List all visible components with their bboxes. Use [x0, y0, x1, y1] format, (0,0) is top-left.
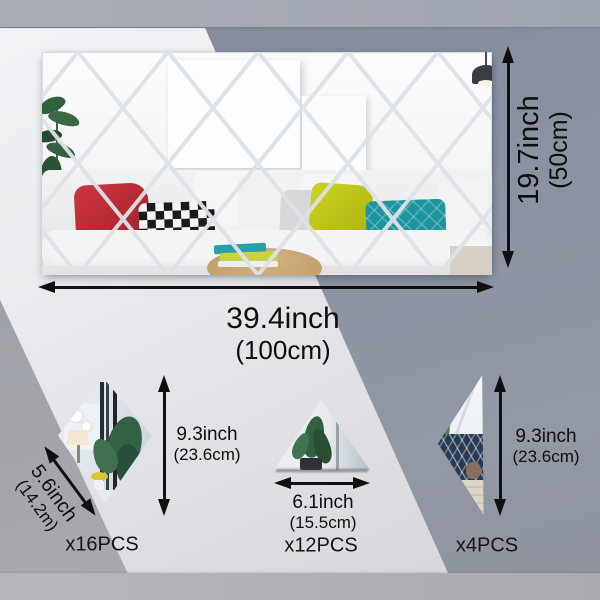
flower-dot [82, 422, 91, 431]
half-diamond-height-arrow [493, 375, 507, 516]
triangle-base-cm: (15.5cm) [289, 513, 356, 532]
half-diamond-piece-photo [438, 374, 486, 516]
diamond-height-label: 9.3inch (23.6cm) [173, 424, 240, 464]
top-band [0, 0, 600, 27]
half-diamond-height-cm: (23.6cm) [512, 447, 579, 466]
diamond-lattice-seams [42, 52, 492, 275]
main-height-cm: (50cm) [545, 95, 573, 205]
main-height-label: 19.7inch (50cm) [513, 95, 573, 205]
diamond-height-arrow [157, 375, 171, 516]
diamond-height-cm: (23.6cm) [173, 445, 240, 464]
table-lamp-shade [66, 430, 90, 445]
beige-blanket [446, 480, 484, 516]
triangle-base-label: 6.1inch (15.5cm) [289, 492, 356, 532]
triangle-base-inches: 6.1inch [289, 492, 356, 513]
product-dimension-diagram: 39.4inch (100cm) 19.7inch (50cm) [0, 0, 600, 600]
triangle-shadow [276, 469, 368, 472]
diamond-height-inches: 9.3inch [173, 424, 240, 445]
bottom-band [0, 573, 600, 600]
main-width-label: 39.4inch (100cm) [226, 302, 339, 365]
large-mirror-photo [42, 52, 492, 275]
brown-cushion [466, 462, 481, 479]
width-dimension-arrow [38, 280, 494, 294]
half-diamond-height-inches: 9.3inch [512, 426, 579, 447]
half-diamond-piece-count: x4PCS [456, 535, 518, 558]
table-lamp-stand [77, 445, 80, 463]
main-width-cm: (100cm) [226, 336, 339, 365]
triangle-piece-count: x12PCS [284, 535, 357, 558]
main-width-inches: 39.4inch [226, 302, 339, 336]
diamond-piece-count: x16PCS [65, 534, 138, 557]
main-height-inches: 19.7inch [513, 95, 545, 205]
triangle-base-arrow [274, 476, 370, 490]
half-diamond-height-label: 9.3inch (23.6cm) [512, 426, 579, 466]
